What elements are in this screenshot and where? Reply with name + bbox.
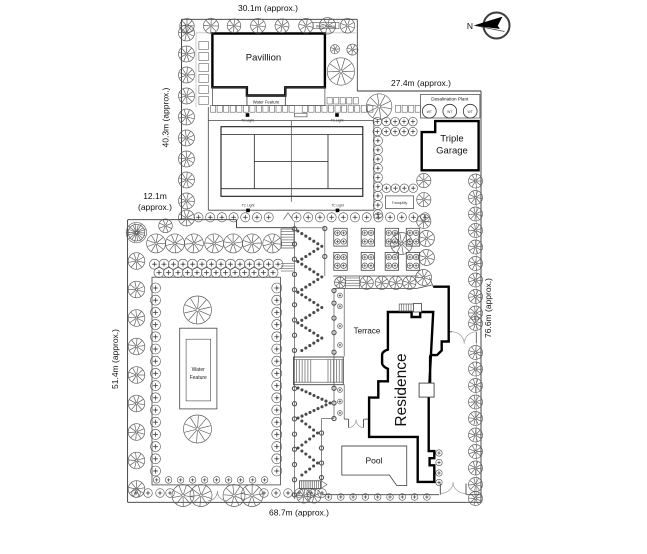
svg-text:68.7m (approx.): 68.7m (approx.) [269,508,329,518]
svg-text:Terrace: Terrace [354,327,381,336]
svg-text:40.3m (approx.): 40.3m (approx.) [161,87,171,147]
svg-text:Triple: Triple [440,134,463,145]
svg-text:Water Feature: Water Feature [253,99,280,104]
svg-text:Pool: Pool [365,456,382,466]
svg-text:Water: Water [192,367,205,373]
svg-text:30.1m (approx.): 30.1m (approx.) [238,3,298,13]
svg-text:51.4m (approx.): 51.4m (approx.) [110,329,120,389]
svg-text:(approx.): (approx.) [138,202,172,212]
svg-text:Pavillion: Pavillion [246,53,281,64]
svg-text:76.6m (approx.): 76.6m (approx.) [483,278,493,338]
svg-text:TC Light: TC Light [242,203,255,207]
svg-text:WT: WT [468,110,473,114]
svg-text:Garage: Garage [436,146,468,157]
svg-text:27.4m (approx.): 27.4m (approx.) [391,78,451,88]
svg-text:TC Light: TC Light [241,119,254,123]
svg-text:Desalination Plant: Desalination Plant [431,97,469,102]
svg-text:TC Light: TC Light [331,203,344,207]
svg-text:WT: WT [447,110,452,114]
svg-text:N: N [467,21,473,31]
svg-text:Residence: Residence [393,353,410,426]
svg-text:WT: WT [427,110,432,114]
svg-text:Tranquility: Tranquility [392,201,408,205]
svg-text:TC Light: TC Light [331,119,344,123]
svg-text:12.1m: 12.1m [143,191,167,201]
svg-text:Feature: Feature [190,375,207,381]
